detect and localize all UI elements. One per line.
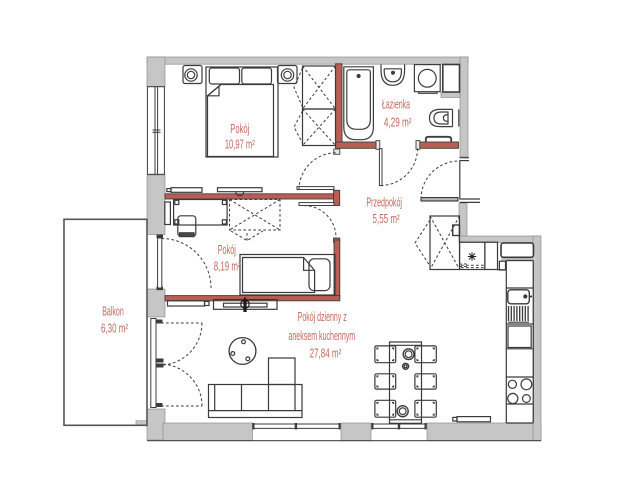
svg-text:Pokój: Pokój [230,122,249,137]
svg-text:6,30 m²: 6,30 m² [101,322,128,336]
svg-text:10,97 m²: 10,97 m² [225,138,255,153]
svg-text:Pokój: Pokój [218,243,236,258]
svg-text:aneksem kuchennym: aneksem kuchennym [288,330,355,344]
svg-text:Przedpokój: Przedpokój [366,197,402,211]
svg-text:5,55 m²: 5,55 m² [373,212,400,226]
svg-text:4,29 m²: 4,29 m² [384,116,412,130]
svg-text:27,84 m²: 27,84 m² [310,347,342,361]
svg-text:8,19 m²: 8,19 m² [214,260,241,274]
svg-text:Łazienka: Łazienka [382,99,410,113]
svg-text:Pokój dzienny z: Pokój dzienny z [298,311,347,325]
svg-text:Balkon: Balkon [102,305,124,319]
